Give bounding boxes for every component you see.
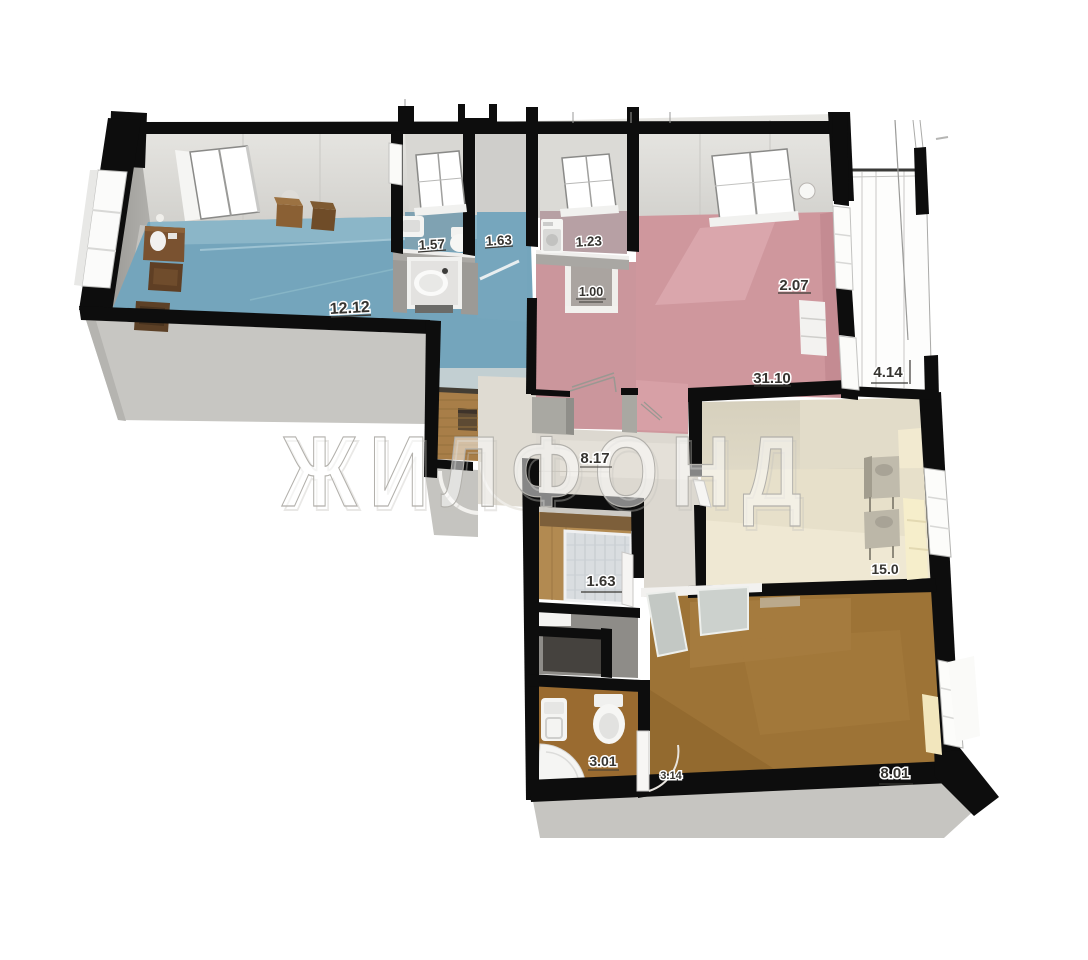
svg-text:2.07: 2.07	[779, 277, 808, 294]
svg-text:15.0: 15.0	[871, 561, 898, 577]
svg-text:1.63: 1.63	[586, 573, 615, 590]
svg-text:1.00: 1.00	[579, 285, 603, 299]
svg-text:1.23: 1.23	[575, 233, 603, 249]
svg-text:3.01: 3.01	[589, 753, 616, 769]
svg-text:ЖИЛФОНД: ЖИЛФОНД	[281, 416, 814, 528]
svg-text:8.01: 8.01	[880, 765, 909, 782]
svg-text:8.17: 8.17	[580, 450, 609, 467]
svg-text:31.10: 31.10	[753, 370, 791, 387]
svg-text:4.14: 4.14	[873, 364, 903, 381]
svg-text:3.14: 3.14	[660, 770, 682, 782]
